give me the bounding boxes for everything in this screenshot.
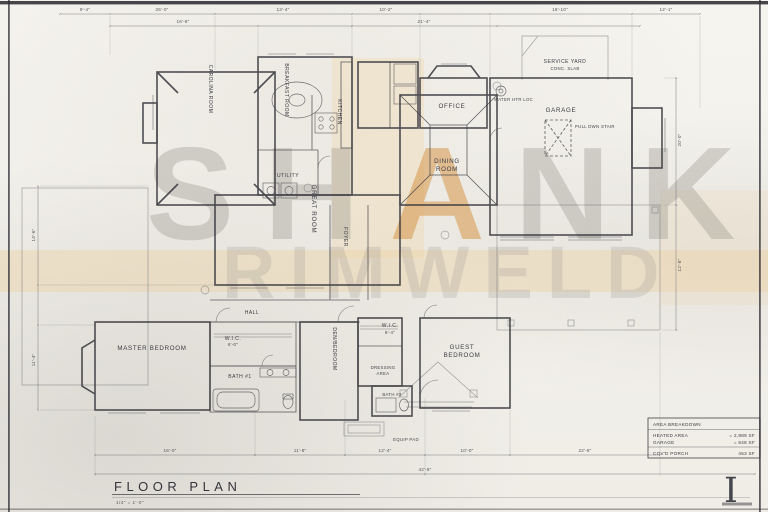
room-label-wic-master: W.I.C. [225, 336, 242, 342]
dimension-lines [38, 14, 755, 474]
room-label-dining-1: DINING [434, 158, 460, 165]
area-row-value: = 2,989 SF [729, 433, 755, 438]
dim-label: 9'-4" [80, 7, 90, 12]
room-label-utility: UTILITY [277, 173, 299, 179]
witness-lines [40, 16, 700, 476]
dim-label: 21'-4" [418, 19, 431, 24]
room-label-dressing-1: DRESSING [371, 365, 396, 370]
corner-monogram: I [722, 471, 752, 511]
label-water-htr: WATER HTR LOC [494, 97, 533, 102]
room-label-master-bedroom: MASTER BEDROOM [117, 345, 186, 352]
floor-plan-drawing: 9'-4" 26'-0" 13'-4" 10'-2" 18'-10" 12'-1… [0, 0, 768, 512]
area-row-label: GARAGE [653, 440, 674, 445]
dim-label: 11'-4" [31, 354, 36, 367]
room-label-hall: HALL [245, 310, 260, 316]
area-table-header: AREA BREAKDOWN [653, 422, 701, 427]
room-label-dining-2: ROOM [436, 166, 458, 173]
area-row-value: = 848 SF [734, 440, 755, 445]
dimension-labels: 9'-4" 26'-0" 13'-4" 10'-2" 18'-10" 12'-1… [31, 7, 682, 472]
dim-label: 14'-6" [31, 228, 36, 241]
room-label-guest-1: GUEST [450, 344, 475, 351]
room-label-garage: GARAGE [546, 107, 577, 114]
dim-label: 42'-8" [419, 467, 432, 472]
dim-label: 13'-4" [277, 7, 290, 12]
area-breakdown-table: AREA BREAKDOWN HEATED AREA = 2,989 SF GA… [648, 418, 760, 458]
room-label-kitchen: KITCHEN [336, 99, 342, 124]
room-label-guest-2: BEDROOM [444, 352, 481, 359]
room-label-dressing-2: AREA [377, 371, 390, 376]
room-label-bath2: BATH #2 [382, 392, 402, 397]
interior-walls [210, 62, 622, 412]
area-row-label: COV'D PORCH [653, 451, 688, 456]
dim-label: 8'-4" [385, 330, 395, 335]
dim-label: 16'-0" [164, 448, 177, 453]
dim-label: 22'-8" [579, 448, 592, 453]
area-row-label: HEATED AREA [653, 433, 689, 438]
dim-label: 12'-1" [660, 7, 673, 12]
area-row-value: 453 SF [738, 451, 755, 456]
dim-label: 12'-4" [379, 448, 392, 453]
drawing-title-block: FLOOR PLAN 1/4" = 1'-0" [112, 479, 750, 505]
window-lines [108, 54, 665, 413]
room-label-foyer: FOYER [342, 227, 348, 247]
dim-label: 20'-0" [677, 133, 682, 146]
dim-label: 11'-8" [294, 448, 307, 453]
label-equip-pad: EQUIP PAD [393, 437, 419, 442]
room-label-carolina-room: CAROLINA ROOM [207, 65, 213, 114]
room-labels: MASTER BEDROOM HALL W.I.C. BATH #1 DEN/B… [117, 59, 614, 442]
dim-label: 10'-2" [380, 7, 393, 12]
dim-label: 10'-0" [461, 448, 474, 453]
dim-label: 26'-0" [156, 7, 169, 12]
dim-label: 16'-8" [177, 19, 190, 24]
fixtures [201, 64, 506, 412]
room-label-great-room: GREAT ROOM [310, 185, 317, 234]
room-label-service-yard-sub: CONC. SLAB [550, 66, 579, 71]
room-label-service-yard: SERVICE YARD [544, 59, 587, 65]
room-label-den-bedroom: DEN/BEDROOM [331, 327, 337, 370]
drawing-title: FLOOR PLAN [114, 479, 241, 494]
room-label-wic-guest: W.I.C. [382, 323, 399, 329]
room-label-breakfast-room: BREAKFAST ROOM [283, 63, 289, 116]
monogram-base [722, 503, 752, 506]
dim-label: 18'-10" [552, 7, 568, 12]
room-label-office: OFFICE [439, 103, 466, 110]
drawing-scale: 1/4" = 1'-0" [116, 500, 144, 505]
dim-label: 12'-8" [677, 258, 682, 271]
room-label-bath1: BATH #1 [228, 374, 251, 380]
label-pull-dwn-stair: PULL DWN STAIR [575, 124, 615, 129]
dim-label: 6'-0" [228, 342, 238, 347]
blueprint-sheet: SHANK RIMWELD [0, 0, 768, 512]
